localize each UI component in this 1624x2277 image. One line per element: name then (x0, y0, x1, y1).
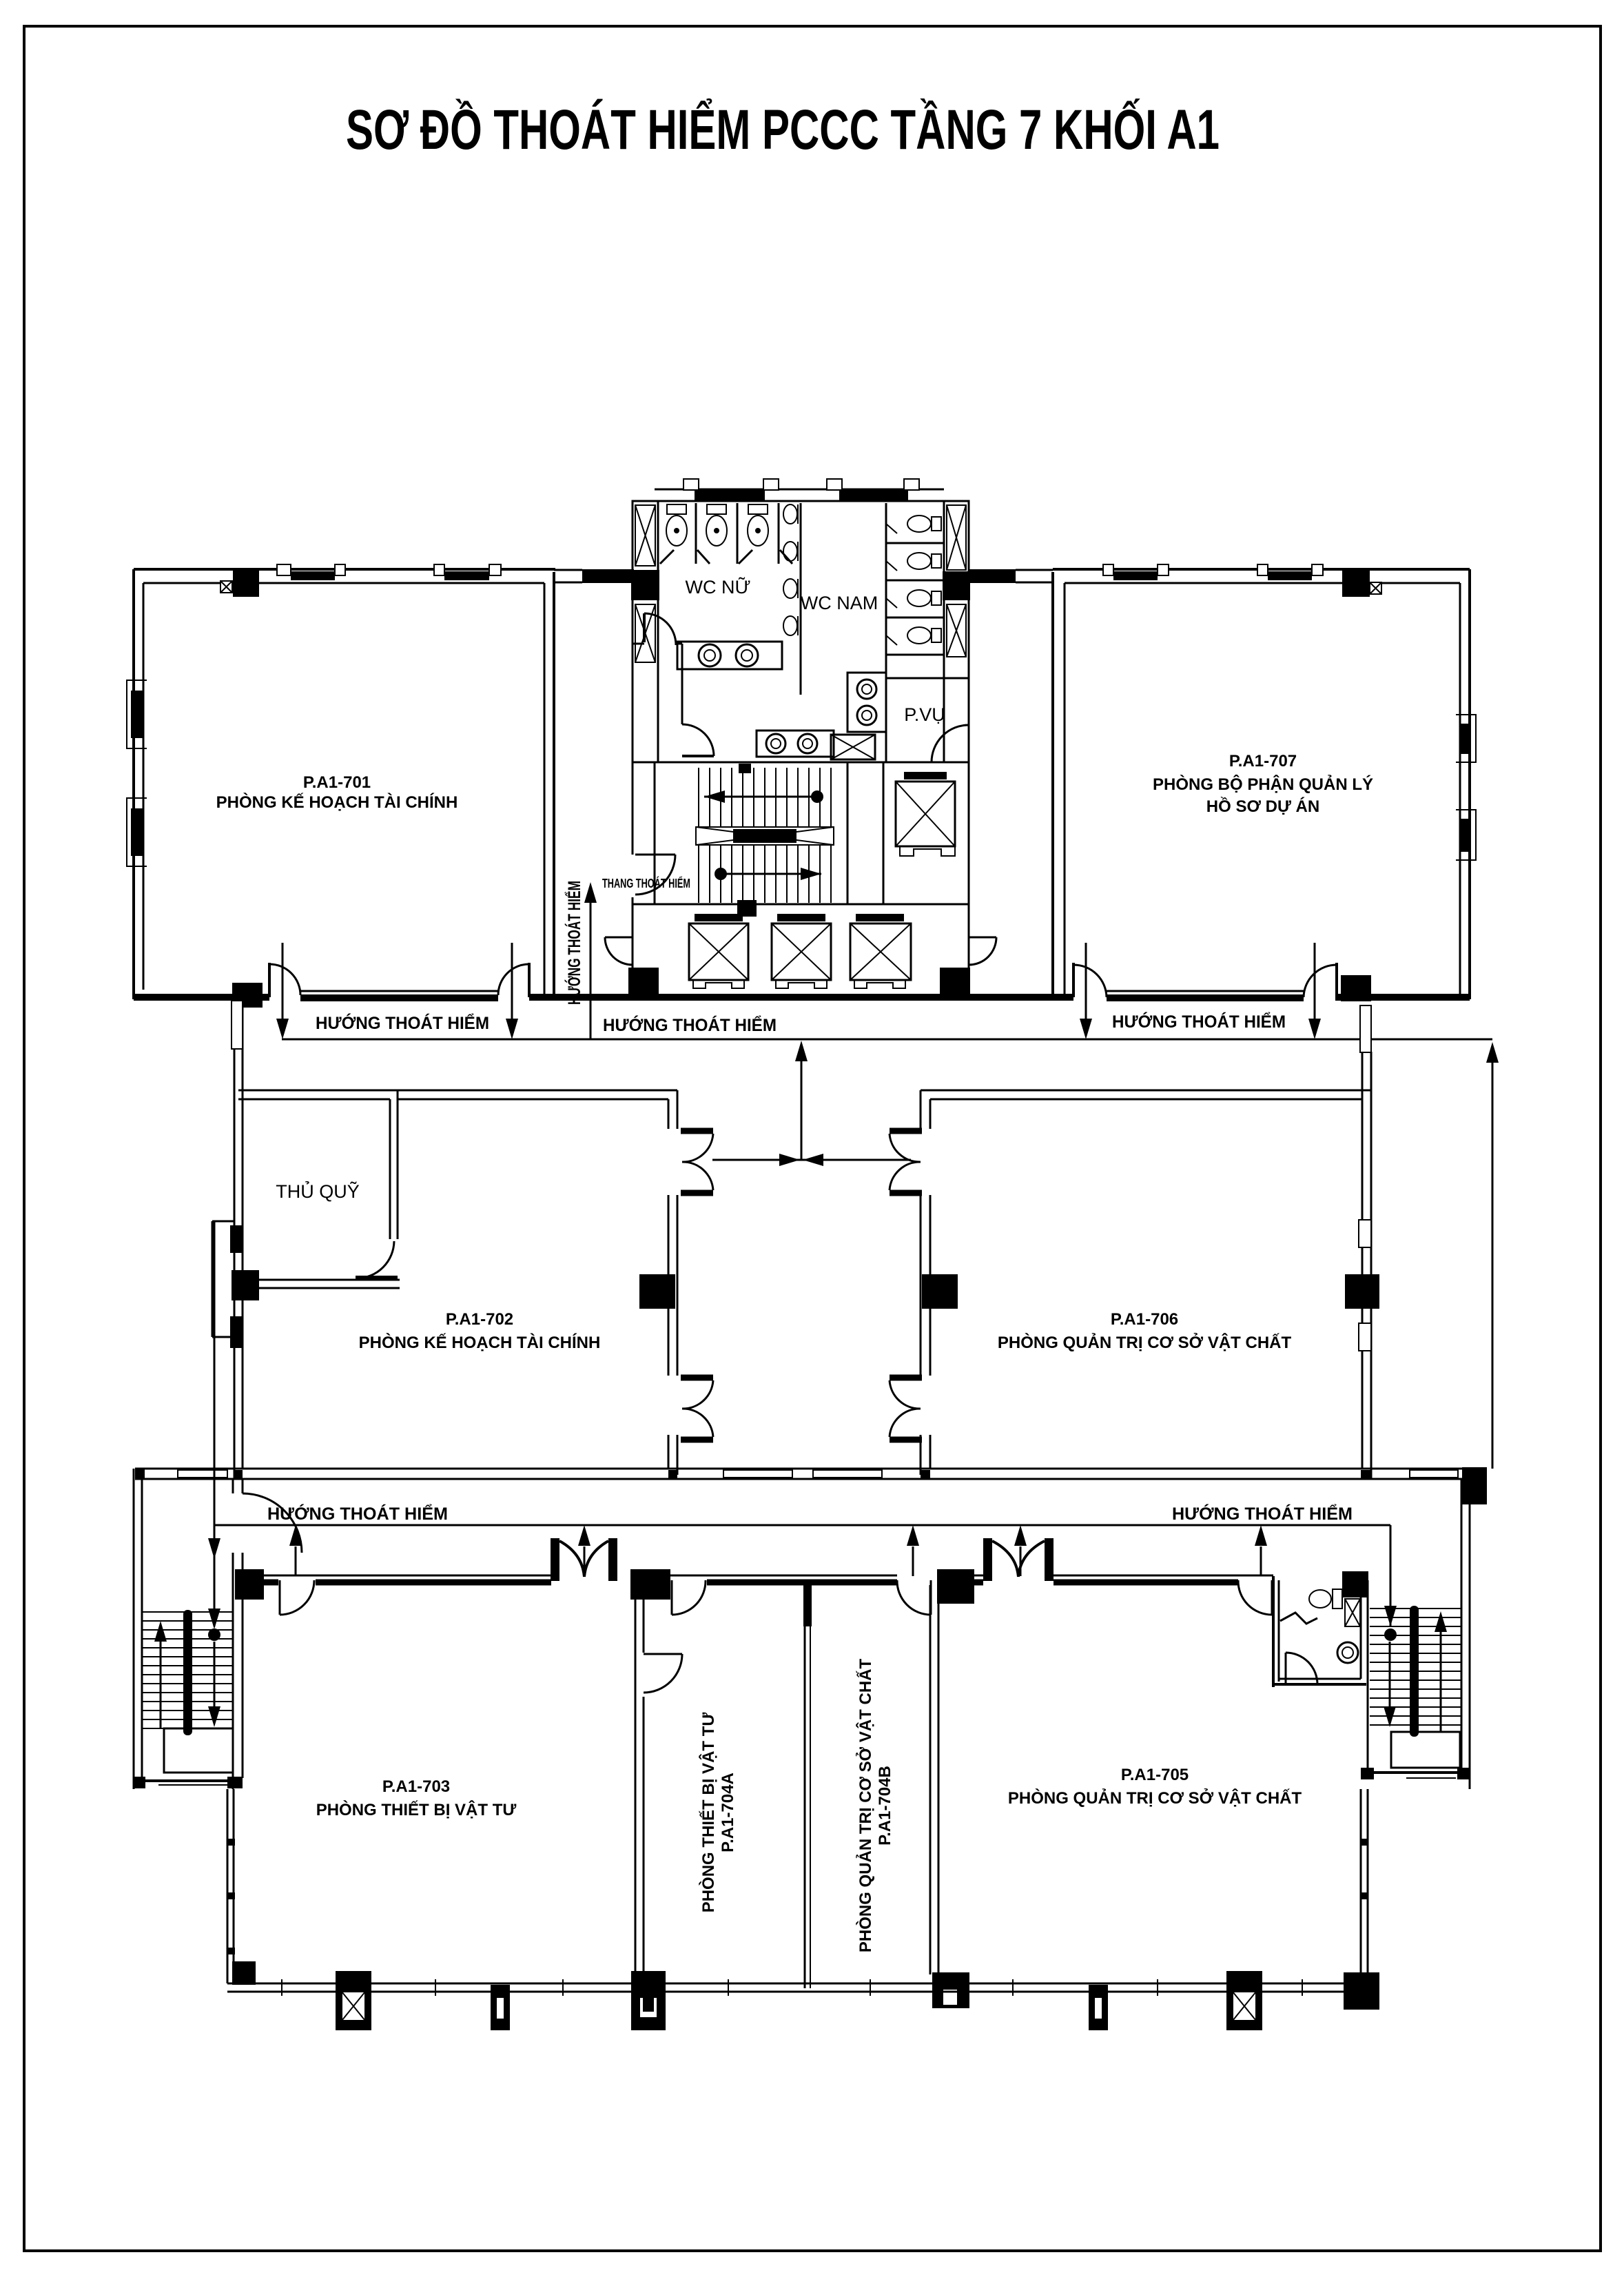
svg-text:P.A1-705: P.A1-705 (1121, 1766, 1189, 1784)
svg-text:P.A1-703: P.A1-703 (382, 1777, 450, 1796)
svg-text:SƠ ĐỒ THOÁT HIỂM PCCC TẦNG 7 K: SƠ ĐỒ THOÁT HIỂM PCCC TẦNG 7 KHỐI A1 (346, 99, 1220, 161)
svg-text:P.A1-701: P.A1-701 (303, 773, 371, 792)
svg-text:PHÒNG QUẢN TRỊ CƠ SỞ VẬT CHẤT: PHÒNG QUẢN TRỊ CƠ SỞ VẬT CHẤT (855, 1659, 875, 1953)
svg-text:P.VỤ: P.VỤ (904, 704, 945, 725)
svg-text:P.A1-704B: P.A1-704B (876, 1766, 894, 1846)
svg-text:HƯỚNG THOÁT HIỂM: HƯỚNG THOÁT HIỂM (1112, 1011, 1286, 1032)
svg-text:PHÒNG BỘ PHẬN QUẢN LÝ: PHÒNG BỘ PHẬN QUẢN LÝ (1153, 774, 1373, 794)
svg-text:P.A1-707: P.A1-707 (1229, 752, 1297, 770)
svg-text:HỒ SƠ DỰ ÁN: HỒ SƠ DỰ ÁN (1206, 797, 1319, 816)
svg-text:HƯỚNG THOÁT HIỂM: HƯỚNG THOÁT HIỂM (267, 1503, 448, 1524)
svg-text:HƯỚNG THOÁT HIỂM: HƯỚNG THOÁT HIỂM (564, 881, 584, 1005)
svg-text:PHÒNG KẾ HOẠCH TÀI CHÍNH: PHÒNG KẾ HOẠCH TÀI CHÍNH (359, 1333, 601, 1352)
svg-text:HƯỚNG THOÁT HIỂM: HƯỚNG THOÁT HIỂM (316, 1012, 489, 1033)
svg-text:P.A1-706: P.A1-706 (1111, 1310, 1178, 1329)
svg-text:HƯỚNG THOÁT HIỂM: HƯỚNG THOÁT HIỂM (603, 1014, 777, 1035)
svg-text:PHÒNG KẾ HOẠCH TÀI CHÍNH: PHÒNG KẾ HOẠCH TÀI CHÍNH (216, 793, 458, 812)
svg-text:P.A1-704A: P.A1-704A (719, 1773, 737, 1852)
svg-text:WC NAM: WC NAM (801, 593, 878, 613)
svg-text:PHÒNG QUẢN TRỊ CƠ SỞ VẬT CHẤT: PHÒNG QUẢN TRỊ CƠ SỞ VẬT CHẤT (998, 1332, 1292, 1352)
svg-text:HƯỚNG THOÁT HIỂM: HƯỚNG THOÁT HIỂM (1172, 1503, 1353, 1524)
svg-text:THANG THOÁT HIỂM: THANG THOÁT HIỂM (602, 876, 690, 890)
svg-text:WC NỮ: WC NỮ (685, 576, 750, 598)
svg-text:PHÒNG QUẢN TRỊ CƠ SỞ VẬT CHẤT: PHÒNG QUẢN TRỊ CƠ SỞ VẬT CHẤT (1008, 1788, 1302, 1808)
svg-text:PHÒNG THIẾT BỊ VẬT TƯ: PHÒNG THIẾT BỊ VẬT TƯ (699, 1713, 718, 1913)
svg-text:P.A1-702: P.A1-702 (446, 1310, 513, 1329)
svg-text:THỦ QUỸ: THỦ QUỸ (276, 1180, 360, 1202)
svg-text:PHÒNG THIẾT BỊ VẬT TƯ: PHÒNG THIẾT BỊ VẬT TƯ (316, 1800, 517, 1819)
